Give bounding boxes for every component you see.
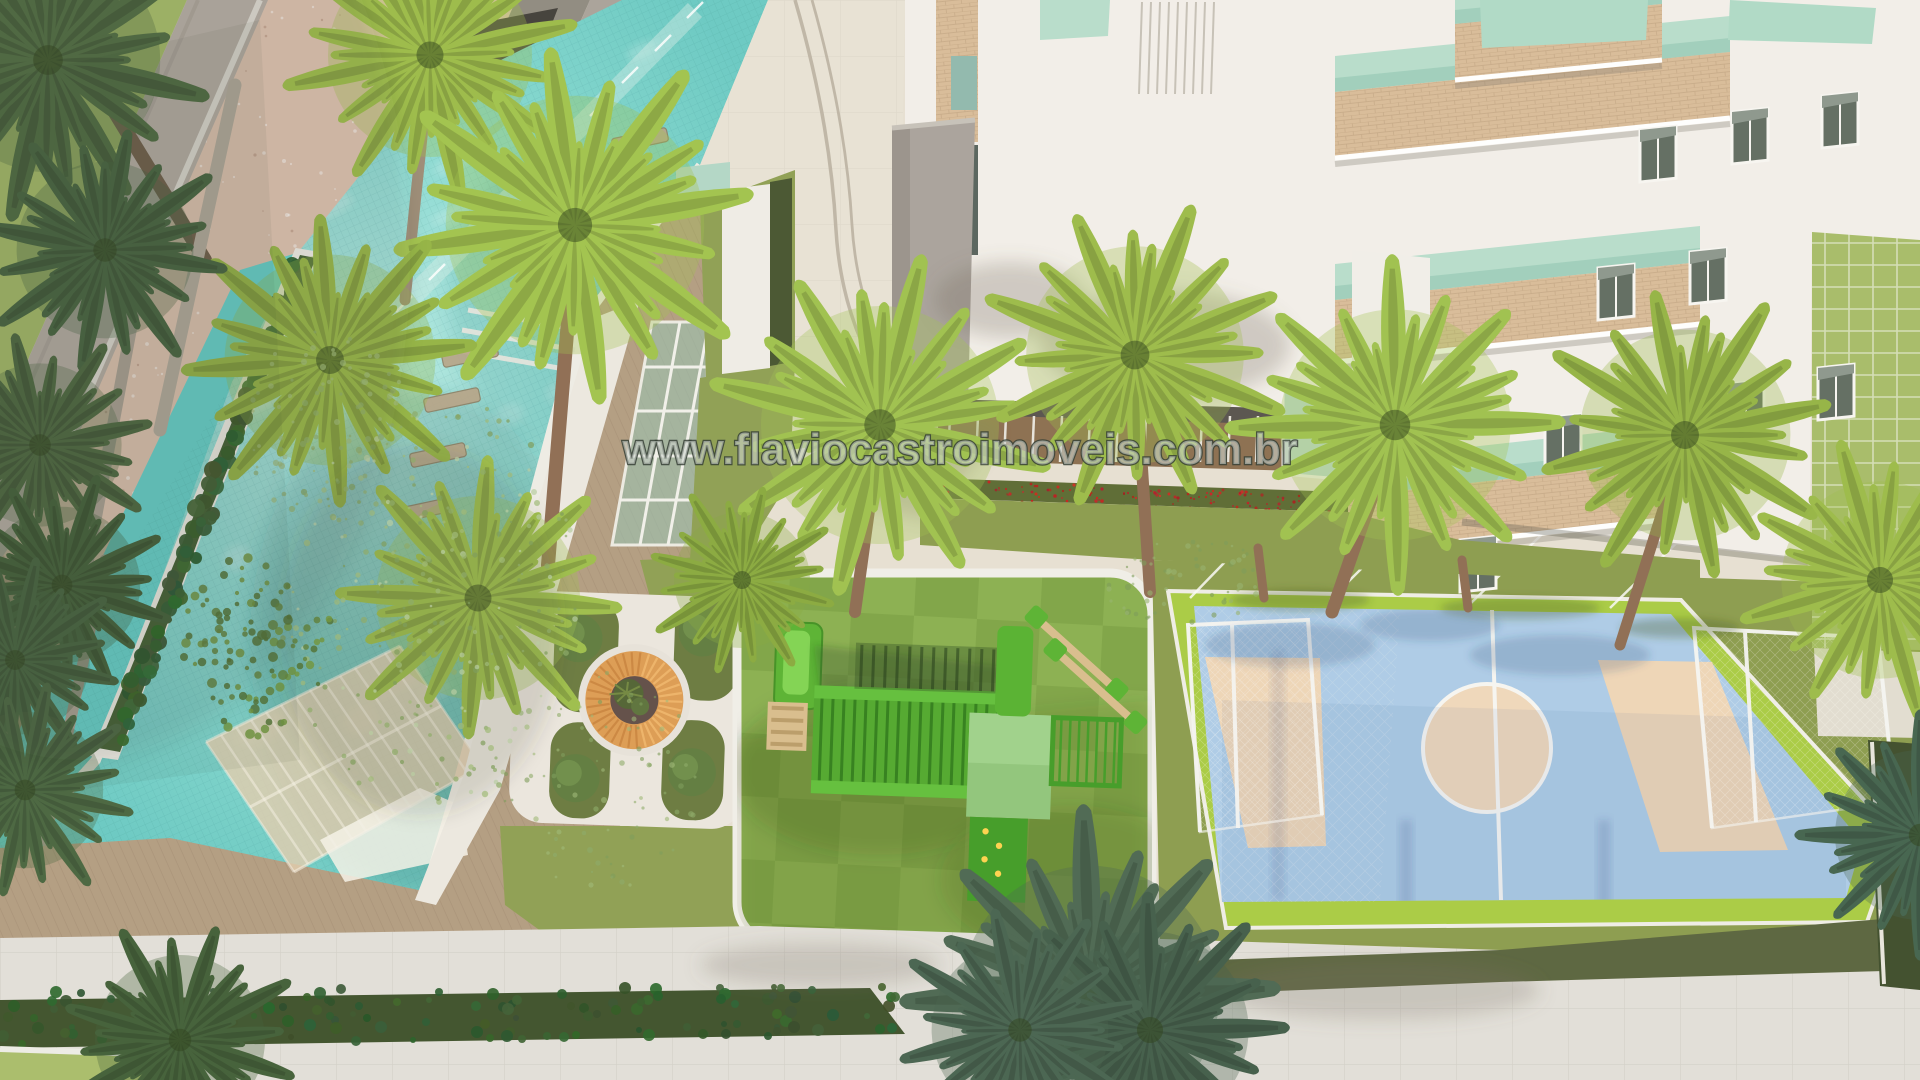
svg-text:www.flaviocastroimoveis.com.br: www.flaviocastroimoveis.com.br	[621, 426, 1297, 474]
